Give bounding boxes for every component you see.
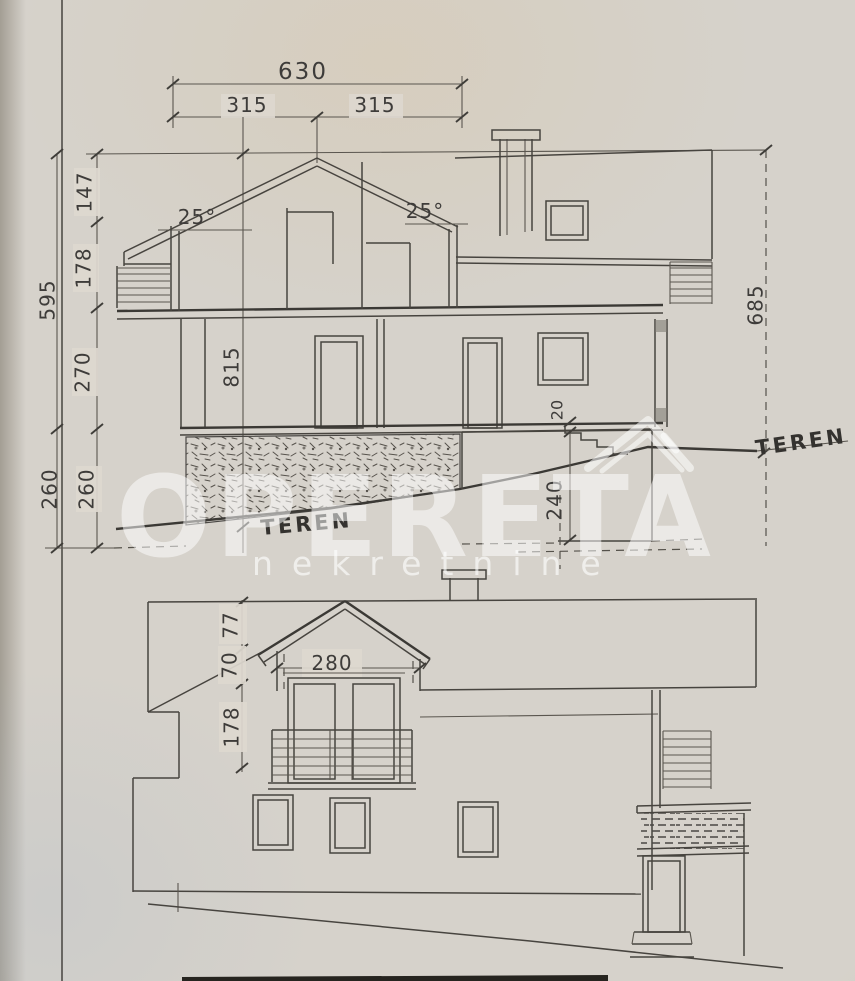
right-louver-band (670, 262, 712, 304)
dim-attic-storey: 178 (72, 247, 96, 288)
dim-total-width: 630 (278, 59, 328, 85)
watermark-tagline: nekretnine (252, 544, 620, 583)
balcony-railing (272, 730, 412, 782)
dim-right-half: 315 (354, 93, 395, 117)
section-top-dimensions: 630 315 315 (167, 59, 468, 163)
drawing-canvas: 630 315 315 815 147 17 (0, 0, 855, 981)
section-window (538, 333, 588, 385)
section-main-floor (180, 262, 712, 435)
dim-storey-height: 178 (220, 706, 244, 747)
terrace-door (643, 856, 685, 932)
balcony (268, 673, 416, 789)
terrain-label-right: TEREN (754, 424, 848, 461)
section-right-dimension: 685 TEREN (744, 145, 849, 546)
elevation-louver-band (663, 731, 711, 789)
interior-door (315, 336, 363, 428)
dim-left-half: 315 (226, 93, 267, 117)
interior-door-2 (463, 338, 502, 428)
elevation-top-line (148, 599, 757, 602)
dim-roof-rise: 147 (73, 171, 97, 212)
window-2 (330, 798, 370, 853)
dim-dormer-rise: 77 (219, 611, 243, 638)
dim-slab-thickness: 20 (548, 400, 567, 420)
window-1 (253, 795, 293, 850)
scanned-architectural-drawing: 630 315 315 815 147 17 (0, 0, 855, 981)
left-balcony-railing (117, 266, 170, 308)
dim-dormer-knee: 70 (218, 651, 242, 678)
dim-main-storey: 270 (71, 351, 95, 392)
roof-angle-left: 25° (178, 205, 216, 229)
elevation-windows (253, 795, 498, 857)
attic-window (546, 201, 588, 240)
chimney (492, 130, 540, 236)
dim-basement-inner: 260 (75, 468, 99, 509)
dim-basement-outer: 260 (38, 468, 62, 509)
dim-overall-left: 595 (36, 279, 60, 320)
elevation-terrain-line (148, 904, 783, 968)
elevation-drawing: 77 70 178 280 (133, 570, 783, 980)
elevation-base-line (133, 891, 641, 894)
dim-overall-right: 685 (744, 284, 768, 325)
elevation-left-dimensions: 77 70 178 (218, 597, 249, 773)
terrace-parapet (641, 813, 744, 849)
terrace (630, 803, 751, 957)
bottom-sheet-edge (182, 978, 608, 980)
window-3 (458, 802, 498, 857)
roof-angle-right: 25° (406, 199, 444, 223)
dim-dormer-width: 280 (311, 651, 352, 675)
dim-ridge-height: 815 (220, 346, 244, 387)
